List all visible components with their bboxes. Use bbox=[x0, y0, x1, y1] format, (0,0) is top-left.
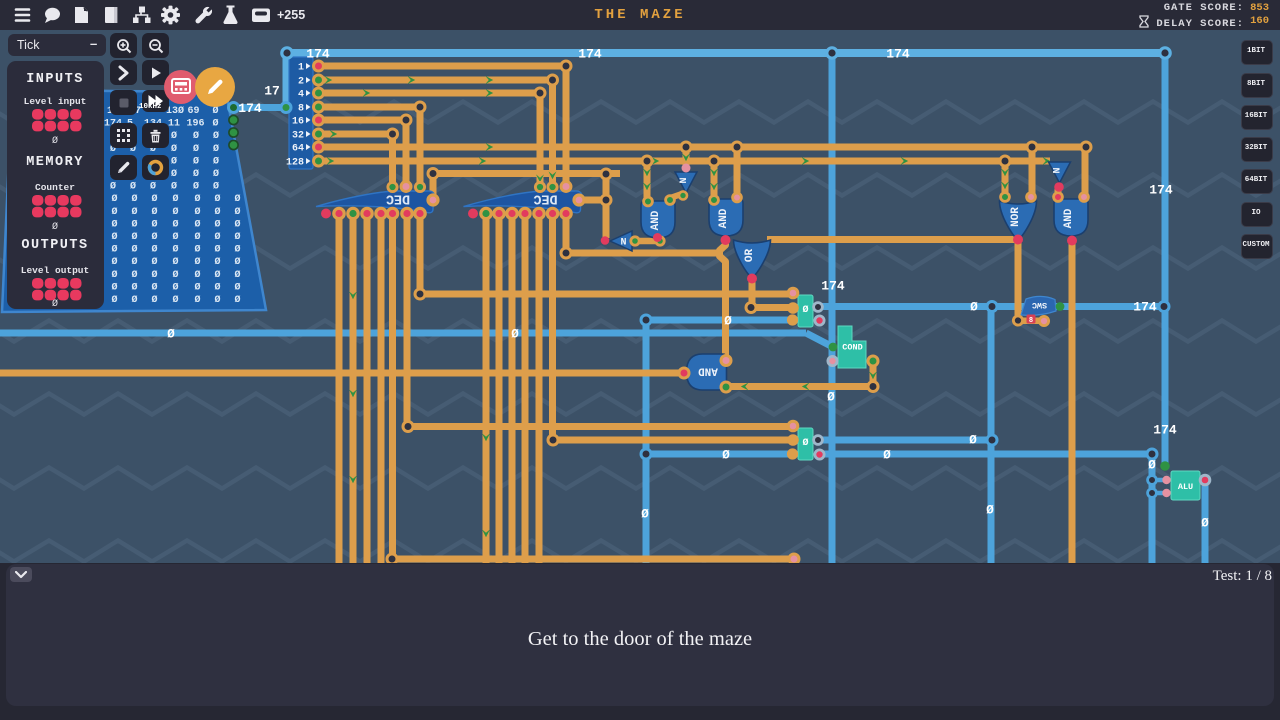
svg-text:Ø: Ø bbox=[194, 281, 200, 293]
svg-text:128: 128 bbox=[286, 158, 304, 169]
svg-text:Ø: Ø bbox=[131, 269, 137, 281]
svg-text:Ø: Ø bbox=[827, 391, 835, 405]
svg-text:Ø: Ø bbox=[172, 256, 178, 268]
svg-text:ALU: ALU bbox=[1178, 482, 1193, 492]
svg-text:Ø: Ø bbox=[131, 193, 137, 205]
svg-text:Ø: Ø bbox=[234, 294, 240, 306]
svg-text:Level output: Level output bbox=[21, 265, 89, 276]
svg-text:Ø: Ø bbox=[234, 256, 240, 268]
svg-text:Ø: Ø bbox=[151, 281, 157, 293]
svg-text:Ø: Ø bbox=[111, 294, 117, 306]
svg-text:Ø: Ø bbox=[131, 294, 137, 306]
svg-text:16: 16 bbox=[292, 117, 304, 128]
svg-text:Ø: Ø bbox=[111, 269, 117, 281]
svg-text:Ø: Ø bbox=[214, 256, 220, 268]
svg-text:Ø: Ø bbox=[167, 328, 175, 342]
svg-text:Level input: Level input bbox=[24, 96, 87, 107]
svg-text:196: 196 bbox=[186, 119, 204, 130]
svg-text:8: 8 bbox=[1029, 317, 1033, 325]
svg-text:Ø: Ø bbox=[802, 304, 808, 316]
svg-text:Ø: Ø bbox=[194, 231, 200, 243]
svg-text:Ø: Ø bbox=[151, 193, 157, 205]
svg-text:AND: AND bbox=[650, 210, 662, 230]
svg-text:COND: COND bbox=[842, 343, 862, 353]
svg-text:Ø: Ø bbox=[641, 508, 649, 522]
svg-text:Ø: Ø bbox=[172, 206, 178, 218]
svg-text:Ø: Ø bbox=[214, 193, 220, 205]
svg-text:Ø: Ø bbox=[131, 256, 137, 268]
svg-text:Ø: Ø bbox=[171, 143, 177, 155]
svg-text:INPUTS: INPUTS bbox=[26, 72, 84, 87]
svg-text:Ø: Ø bbox=[171, 181, 177, 193]
svg-text:Ø: Ø bbox=[214, 244, 220, 256]
svg-text:Ø: Ø bbox=[150, 181, 156, 193]
svg-text:N: N bbox=[679, 177, 690, 183]
svg-text:Ø: Ø bbox=[193, 168, 199, 180]
svg-text:Ø: Ø bbox=[214, 206, 220, 218]
svg-text:Ø: Ø bbox=[234, 269, 240, 281]
svg-text:Ø: Ø bbox=[511, 328, 519, 342]
svg-text:Ø: Ø bbox=[234, 244, 240, 256]
svg-text:Ø: Ø bbox=[52, 135, 58, 147]
svg-text:Ø: Ø bbox=[52, 221, 58, 233]
svg-text:Ø: Ø bbox=[212, 118, 218, 130]
svg-text:Ø: Ø bbox=[172, 231, 178, 243]
svg-text:Ø: Ø bbox=[131, 281, 137, 293]
svg-text:Ø: Ø bbox=[151, 218, 157, 230]
svg-text:N: N bbox=[1053, 167, 1064, 173]
svg-text:Ø: Ø bbox=[151, 269, 157, 281]
svg-text:OUTPUTS: OUTPUTS bbox=[21, 238, 88, 253]
svg-text:Ø: Ø bbox=[1201, 517, 1209, 531]
svg-text:Ø: Ø bbox=[151, 244, 157, 256]
svg-text:174: 174 bbox=[1133, 300, 1157, 315]
svg-text:4: 4 bbox=[298, 90, 304, 101]
svg-text:Ø: Ø bbox=[110, 181, 116, 193]
svg-text:Ø: Ø bbox=[234, 231, 240, 243]
svg-text:AND: AND bbox=[1063, 208, 1075, 228]
svg-text:Ø: Ø bbox=[1148, 459, 1156, 473]
svg-text:AND: AND bbox=[718, 208, 730, 228]
svg-text:17: 17 bbox=[264, 84, 280, 99]
svg-text:1: 1 bbox=[298, 63, 304, 74]
svg-text:Ø: Ø bbox=[171, 130, 177, 142]
svg-text:Ø: Ø bbox=[111, 231, 117, 243]
svg-text:Ø: Ø bbox=[111, 218, 117, 230]
svg-text:Ø: Ø bbox=[214, 294, 220, 306]
svg-text:Ø: Ø bbox=[234, 281, 240, 293]
svg-text:OR: OR bbox=[744, 249, 756, 263]
svg-text:Ø: Ø bbox=[151, 256, 157, 268]
svg-text:2: 2 bbox=[298, 77, 304, 88]
svg-text:Ø: Ø bbox=[193, 181, 199, 193]
svg-text:Ø: Ø bbox=[131, 231, 137, 243]
svg-text:Ø: Ø bbox=[172, 281, 178, 293]
svg-text:Ø: Ø bbox=[171, 155, 177, 167]
svg-text:Ø: Ø bbox=[213, 155, 219, 167]
svg-text:Ø: Ø bbox=[234, 193, 240, 205]
svg-text:Ø: Ø bbox=[52, 298, 58, 309]
svg-text:174: 174 bbox=[1153, 423, 1177, 438]
svg-text:Ø: Ø bbox=[172, 244, 178, 256]
svg-text:Ø: Ø bbox=[172, 218, 178, 230]
svg-text:SWC: SWC bbox=[1032, 300, 1047, 310]
svg-text:64: 64 bbox=[292, 144, 304, 155]
svg-text:AND: AND bbox=[698, 365, 718, 377]
svg-text:Ø: Ø bbox=[193, 130, 199, 142]
svg-text:Ø: Ø bbox=[194, 294, 200, 306]
svg-text:Ø: Ø bbox=[111, 244, 117, 256]
svg-text:Ø: Ø bbox=[214, 218, 220, 230]
svg-text:Ø: Ø bbox=[214, 281, 220, 293]
svg-text:Ø: Ø bbox=[151, 294, 157, 306]
svg-text:Ø: Ø bbox=[194, 206, 200, 218]
svg-text:Ø: Ø bbox=[724, 315, 732, 329]
svg-text:Ø: Ø bbox=[172, 294, 178, 306]
svg-text:Ø: Ø bbox=[131, 218, 137, 230]
svg-text:Ø: Ø bbox=[111, 206, 117, 218]
svg-text:Ø: Ø bbox=[802, 437, 808, 449]
svg-text:Ø: Ø bbox=[986, 504, 994, 518]
svg-text:174: 174 bbox=[578, 47, 602, 62]
svg-text:174: 174 bbox=[238, 101, 262, 116]
svg-text:Ø: Ø bbox=[722, 449, 730, 463]
svg-text:Ø: Ø bbox=[194, 269, 200, 281]
svg-text:Ø: Ø bbox=[970, 301, 978, 315]
svg-text:11: 11 bbox=[168, 119, 180, 130]
svg-text:MEMORY: MEMORY bbox=[26, 155, 84, 170]
svg-text:NOR: NOR bbox=[1010, 207, 1022, 227]
svg-text:Ø: Ø bbox=[172, 269, 178, 281]
svg-text:Ø: Ø bbox=[111, 281, 117, 293]
svg-text:Ø: Ø bbox=[969, 434, 977, 448]
svg-text:Ø: Ø bbox=[172, 193, 178, 205]
svg-text:69: 69 bbox=[187, 106, 199, 117]
svg-text:Ø: Ø bbox=[194, 218, 200, 230]
svg-text:Ø: Ø bbox=[214, 269, 220, 281]
svg-text:Ø: Ø bbox=[171, 168, 177, 180]
svg-text:Ø: Ø bbox=[111, 193, 117, 205]
svg-text:174: 174 bbox=[886, 47, 910, 62]
svg-text:Ø: Ø bbox=[131, 206, 137, 218]
svg-text:Ø: Ø bbox=[193, 143, 199, 155]
svg-text:Ø: Ø bbox=[234, 218, 240, 230]
svg-text:Ø: Ø bbox=[130, 181, 136, 193]
svg-text:32: 32 bbox=[292, 131, 304, 142]
svg-text:Ø: Ø bbox=[194, 244, 200, 256]
svg-text:Ø: Ø bbox=[213, 168, 219, 180]
svg-text:174: 174 bbox=[306, 47, 330, 62]
svg-text:Ø: Ø bbox=[151, 206, 157, 218]
svg-text:Ø: Ø bbox=[193, 155, 199, 167]
svg-text:Ø: Ø bbox=[213, 181, 219, 193]
svg-text:Ø: Ø bbox=[214, 231, 220, 243]
svg-text:174: 174 bbox=[821, 279, 845, 294]
svg-text:Ø: Ø bbox=[883, 449, 891, 463]
svg-text:N: N bbox=[620, 238, 626, 249]
svg-text:Counter: Counter bbox=[35, 182, 75, 193]
svg-text:Ø: Ø bbox=[194, 193, 200, 205]
svg-text:Ø: Ø bbox=[111, 256, 117, 268]
svg-text:Ø: Ø bbox=[151, 231, 157, 243]
svg-text:Ø: Ø bbox=[234, 206, 240, 218]
svg-text:Ø: Ø bbox=[131, 244, 137, 256]
svg-text:174: 174 bbox=[1149, 183, 1173, 198]
svg-text:Ø: Ø bbox=[213, 130, 219, 142]
svg-text:8: 8 bbox=[298, 104, 304, 115]
svg-text:Ø: Ø bbox=[213, 143, 219, 155]
svg-text:Ø: Ø bbox=[194, 256, 200, 268]
